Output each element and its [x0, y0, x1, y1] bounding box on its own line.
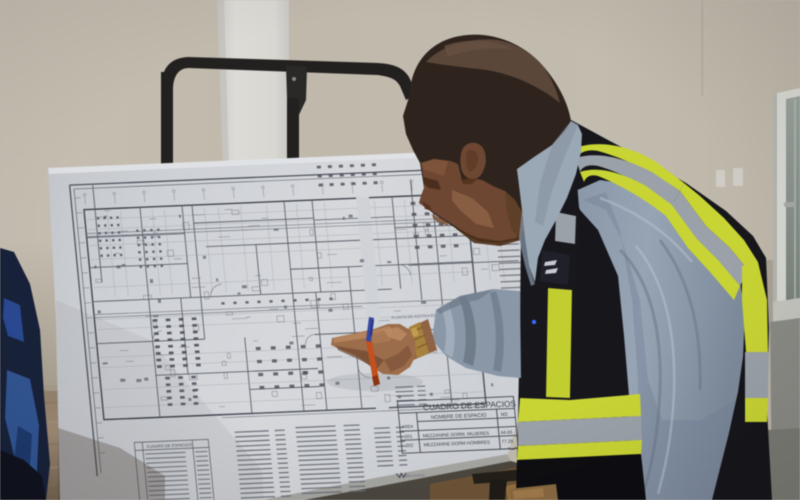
svg-text:77.28: 77.28 [501, 439, 513, 444]
svg-text:202: 202 [405, 443, 414, 448]
svg-text:MEZZANINE: MEZZANINE [405, 473, 426, 478]
svg-text:44.65: 44.65 [501, 430, 513, 435]
svg-text:M2: M2 [501, 412, 509, 418]
svg-text:AREA: AREA [402, 424, 414, 429]
svg-text:201: 201 [405, 434, 414, 439]
